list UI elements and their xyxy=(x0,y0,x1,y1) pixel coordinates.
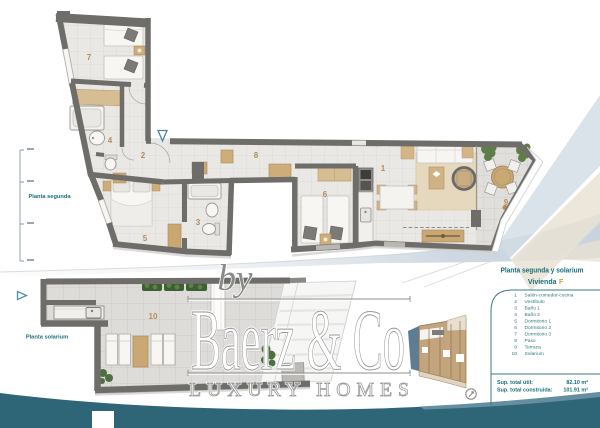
svg-text:F: F xyxy=(559,279,564,286)
svg-text:3: 3 xyxy=(196,218,201,227)
svg-text:Planta segunda y solarium: Planta segunda y solarium xyxy=(501,266,584,275)
svg-text:Dormitorio 1: Dormitorio 1 xyxy=(525,319,552,325)
svg-text:8: 8 xyxy=(254,151,259,160)
svg-text:1: 1 xyxy=(381,164,386,173)
svg-text:Dormitorio 2: Dormitorio 2 xyxy=(525,325,552,331)
svg-text:4: 4 xyxy=(514,312,517,318)
svg-text:Paso: Paso xyxy=(525,338,536,344)
svg-text:5: 5 xyxy=(514,319,517,325)
svg-text:Salón-comedor-cocina: Salón-comedor-cocina xyxy=(525,293,574,299)
svg-text:9: 9 xyxy=(514,345,517,351)
svg-text:Vestíbulo: Vestíbulo xyxy=(525,299,545,305)
svg-text:9: 9 xyxy=(504,198,509,207)
svg-text:LUXURY HOMES: LUXURY HOMES xyxy=(189,379,415,401)
svg-text:Baño 1: Baño 1 xyxy=(525,306,541,312)
svg-text:Planta solarium: Planta solarium xyxy=(26,335,68,341)
svg-text:Baño 2: Baño 2 xyxy=(525,312,541,318)
svg-text:101.91 m²: 101.91 m² xyxy=(563,388,588,394)
svg-text:7: 7 xyxy=(514,332,517,338)
svg-text:Dormitorio 3: Dormitorio 3 xyxy=(525,332,552,338)
svg-text:Vivienda: Vivienda xyxy=(528,279,557,286)
svg-text:3: 3 xyxy=(514,306,517,312)
svg-text:4: 4 xyxy=(108,136,113,145)
svg-text:1: 1 xyxy=(514,293,517,299)
svg-text:7: 7 xyxy=(87,53,92,62)
svg-text:6: 6 xyxy=(323,190,328,199)
svg-text:82.10 m²: 82.10 m² xyxy=(566,380,588,386)
svg-text:Terraza: Terraza xyxy=(525,345,542,351)
svg-text:8: 8 xyxy=(514,338,517,344)
svg-text:5: 5 xyxy=(143,234,148,243)
svg-text:2: 2 xyxy=(514,299,517,305)
svg-text:Sup. total construida:: Sup. total construida: xyxy=(497,388,553,394)
svg-text:Sup. total útil:: Sup. total útil: xyxy=(497,380,533,386)
svg-text:2: 2 xyxy=(141,151,146,160)
svg-text:Planta segunda: Planta segunda xyxy=(28,194,71,200)
svg-text:10: 10 xyxy=(149,312,158,321)
svg-text:10: 10 xyxy=(512,351,518,357)
svg-text:Solarium: Solarium xyxy=(525,351,544,357)
svg-text:6: 6 xyxy=(514,325,517,331)
